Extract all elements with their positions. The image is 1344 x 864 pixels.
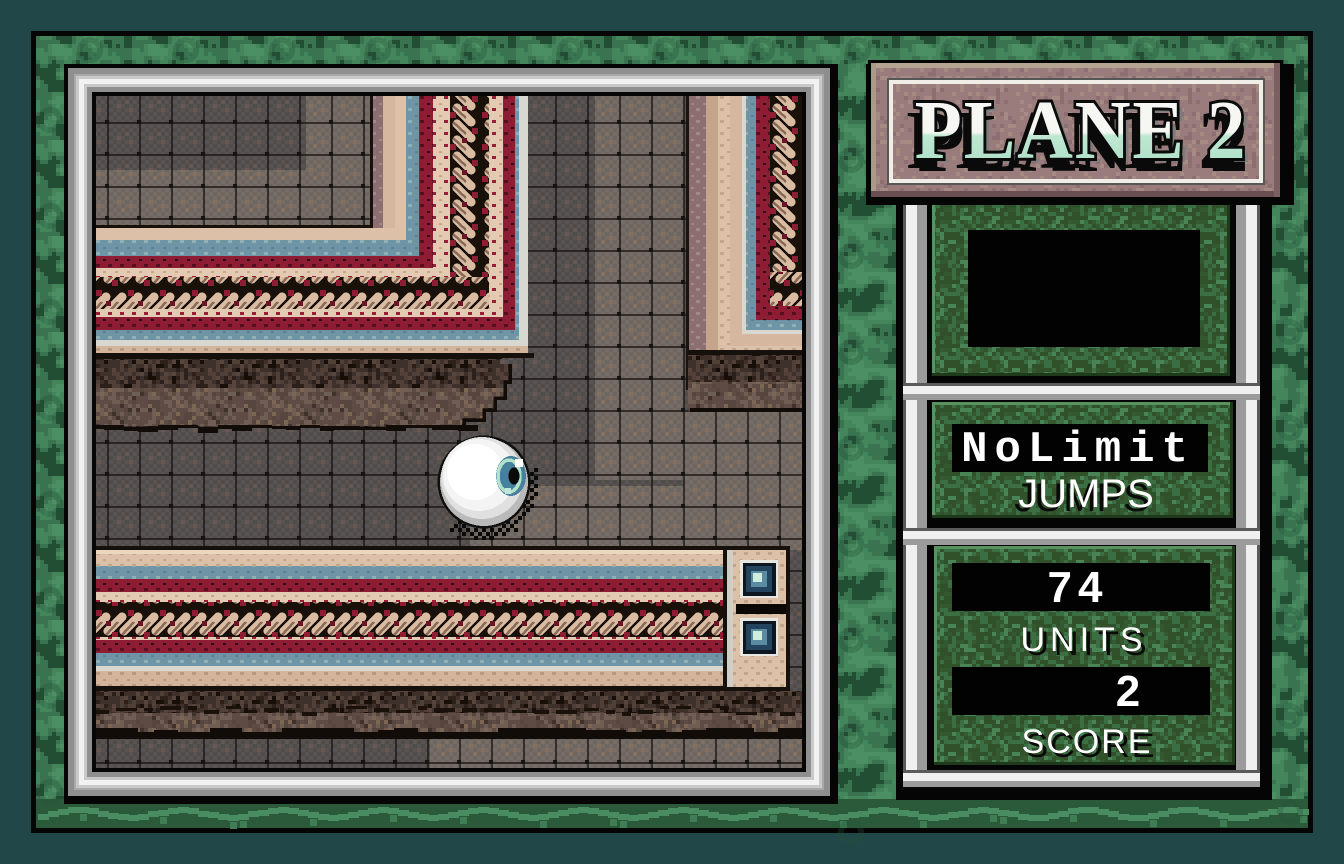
svg-text:2: 2 — [1116, 667, 1140, 716]
svg-text:74: 74 — [1048, 563, 1109, 612]
svg-text:NoLimit: NoLimit — [961, 425, 1195, 475]
svg-text:UNITS: UNITS — [1021, 621, 1148, 659]
svg-text:PLANE 2: PLANE 2 — [915, 84, 1248, 177]
svg-text:SCORE: SCORE — [1022, 723, 1153, 761]
svg-text:JUMPS: JUMPS — [1018, 472, 1154, 516]
